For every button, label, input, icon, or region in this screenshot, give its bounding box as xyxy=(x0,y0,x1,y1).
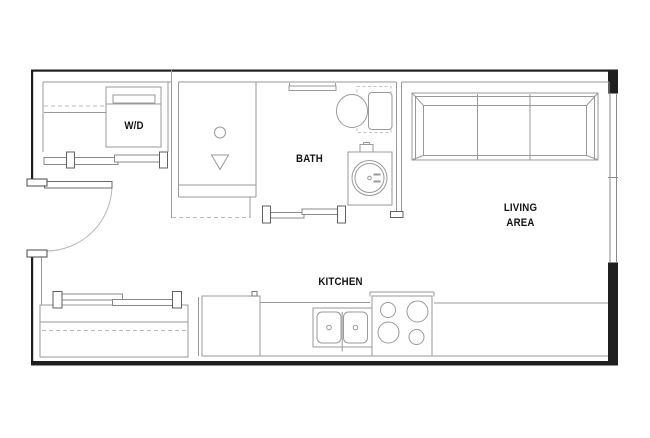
room-label-kitchen: KITCHEN xyxy=(305,275,376,290)
toilet-icon xyxy=(337,93,393,130)
refrigerator-icon xyxy=(199,292,261,357)
shower-stall xyxy=(172,70,257,218)
burner-small-icon xyxy=(409,330,424,345)
room-label-wd: W/D xyxy=(108,119,161,134)
entry-closet-sliding-doors xyxy=(53,292,182,309)
door-swing-arc xyxy=(46,185,112,251)
bath-sliding-door xyxy=(263,206,346,223)
cooktop-icon xyxy=(370,292,434,356)
entry-door xyxy=(27,179,112,257)
sofa-icon xyxy=(412,93,598,160)
bath-fixtures xyxy=(289,83,392,205)
wd-closet-sliding-doors xyxy=(44,152,168,168)
burner-large-icon xyxy=(407,301,428,322)
burner-small-icon xyxy=(381,303,396,318)
washer-dryer-icon xyxy=(106,87,161,147)
kitchen-fixtures xyxy=(199,292,609,357)
vanity-sink-icon xyxy=(348,143,392,206)
door-jamb xyxy=(27,179,47,186)
door-jamb xyxy=(27,250,47,257)
entry-closet xyxy=(40,292,188,358)
shower-drain-triangle-icon xyxy=(212,155,229,170)
inner-wall-lines xyxy=(42,82,610,305)
kitchen-sink-icon xyxy=(313,308,372,352)
floor-plan-drawing xyxy=(0,0,650,438)
wall-niche-icon xyxy=(289,83,336,91)
room-label-living-area: LIVING AREA xyxy=(499,201,542,231)
shower-drain-circle-icon xyxy=(215,127,226,138)
floor-plan-page: W/D BATH LIVING AREA KITCHEN xyxy=(0,0,650,438)
room-label-bath: BATH xyxy=(283,152,337,167)
burner-large-icon xyxy=(378,322,399,343)
door-leaf xyxy=(45,182,113,189)
window-icon xyxy=(608,93,618,263)
